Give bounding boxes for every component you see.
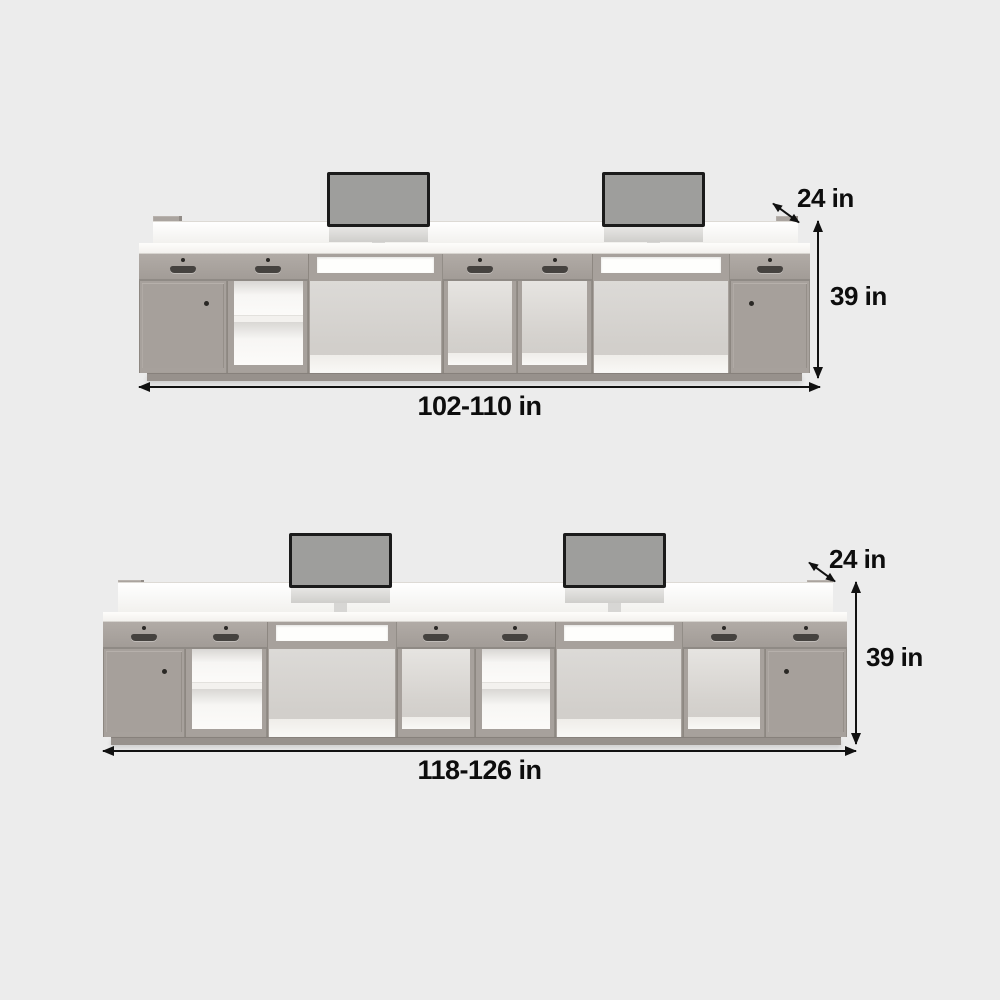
desk-section-cabinet-door [103,622,185,737]
monitor [327,172,430,252]
door-keyhole [162,669,167,674]
drawer-front [185,622,267,649]
hutch-back-panel [118,582,833,612]
desk-bottom-height-label: 39 in [866,644,923,670]
knee-slot [564,625,674,641]
counter-top [139,243,810,254]
open-cabinet [688,649,760,729]
shelf-compartment [234,281,303,316]
monitor-screen [327,172,430,227]
monitor [602,172,705,252]
door-keyhole [749,301,754,306]
desk-top-illustration [139,172,810,381]
open-cabinet [448,281,512,365]
drawer-keyhole [181,258,185,262]
drawer-handle [131,634,157,641]
open-cabinet [402,649,470,729]
door-keyhole [784,669,789,674]
desk-section-cabinet-door [139,254,227,373]
cabinet-door [142,283,224,368]
drawer-keyhole [513,626,517,630]
knee-slot [601,257,721,273]
desk-top-height-arrow [817,221,819,378]
drawer-handle [711,634,737,641]
drawer-keyhole [804,626,808,630]
monitor-chin [329,227,428,242]
shelf-compartment [482,689,550,729]
drawer-front [397,622,475,649]
monitor-chin [604,227,703,242]
desk-bottom-width-label: 118-126 in [103,757,856,784]
monitor-chin [291,588,390,603]
desk-top-width-label: 102-110 in [139,393,820,420]
open-shelf [192,649,262,729]
desk-section-drawer-open-cabinet [517,254,592,373]
desk-bottom-illustration [103,533,847,745]
drawer-front [765,622,847,649]
monitor [563,533,666,613]
drawer-handle [502,634,528,641]
plinth [111,737,841,745]
drawer-handle [213,634,239,641]
plinth [147,373,802,381]
knee-recess [557,649,681,737]
open-shelf [234,281,303,365]
knee-floor [269,719,395,737]
knee-floor [594,355,728,373]
drawer-handle [467,266,493,273]
desk-top-height-label: 39 in [830,283,887,309]
drawer-keyhole [224,626,228,630]
reception-desk-dimension-diagram: 24 in 39 in 102-110 in 24 in 39 in 118-1… [0,0,1000,1000]
desk-section-cabinet-door [730,254,810,373]
drawer-keyhole [553,258,557,262]
open-shelf [482,649,550,729]
desk-section-knee-space [555,622,683,737]
drawer-handle [793,634,819,641]
door-keyhole [204,301,209,306]
drawer-front [517,254,592,281]
desk-top-depth-label: 24 in [797,185,854,211]
desk-section-drawer-open-cabinet [443,254,517,373]
open-cabinet [522,281,587,365]
monitor-screen [563,533,666,588]
open-cabinet-floor [522,353,587,365]
desk-section-drawer-open-cabinet [397,622,475,737]
knee-recess [269,649,395,737]
open-cabinet-floor [402,717,470,729]
drawer-keyhole [478,258,482,262]
monitor-chin [565,588,664,603]
drawer-front [730,254,810,281]
knee-slot [276,625,388,641]
knee-floor [557,719,681,737]
desk-section-knee-space [592,254,730,373]
desk-section-cabinet-door [765,622,847,737]
knee-floor [310,355,441,373]
shelf-compartment [482,649,550,683]
drawer-front [139,254,227,281]
shelf-compartment [192,649,262,683]
desk-section-knee-space [267,622,397,737]
drawer-handle [542,266,568,273]
cabinet-door [733,283,807,368]
desk-section-drawer-open-shelf [185,622,267,737]
counter-top [103,612,847,622]
desk-bottom-width-arrow [103,750,856,752]
drawer-keyhole [266,258,270,262]
drawer-handle [255,266,281,273]
cabinet-door [106,651,182,732]
monitor-screen [602,172,705,227]
desk-top-width-arrow [139,386,820,388]
desk-section-drawer-open-shelf [475,622,555,737]
knee-recess [310,281,441,373]
drawer-front [443,254,517,281]
drawer-handle [757,266,783,273]
drawer-front [683,622,765,649]
desk-section-drawer-open-shelf [227,254,308,373]
drawer-front [227,254,308,281]
desk-section-knee-space [308,254,443,373]
drawer-keyhole [722,626,726,630]
shelf-compartment [192,689,262,729]
monitor-screen [289,533,392,588]
drawer-front [475,622,555,649]
desk-bottom-depth-label: 24 in [829,546,886,572]
monitor [289,533,392,613]
knee-recess [594,281,728,373]
drawer-keyhole [768,258,772,262]
drawer-keyhole [434,626,438,630]
desk-section-drawer-open-cabinet [683,622,765,737]
drawer-keyhole [142,626,146,630]
drawer-handle [423,634,449,641]
drawer-handle [170,266,196,273]
drawer-front [103,622,185,649]
open-cabinet-floor [688,717,760,729]
open-cabinet-floor [448,353,512,365]
shelf-compartment [234,322,303,365]
desk-bottom-height-arrow [855,582,857,744]
knee-slot [317,257,434,273]
cabinet-door [768,651,844,732]
